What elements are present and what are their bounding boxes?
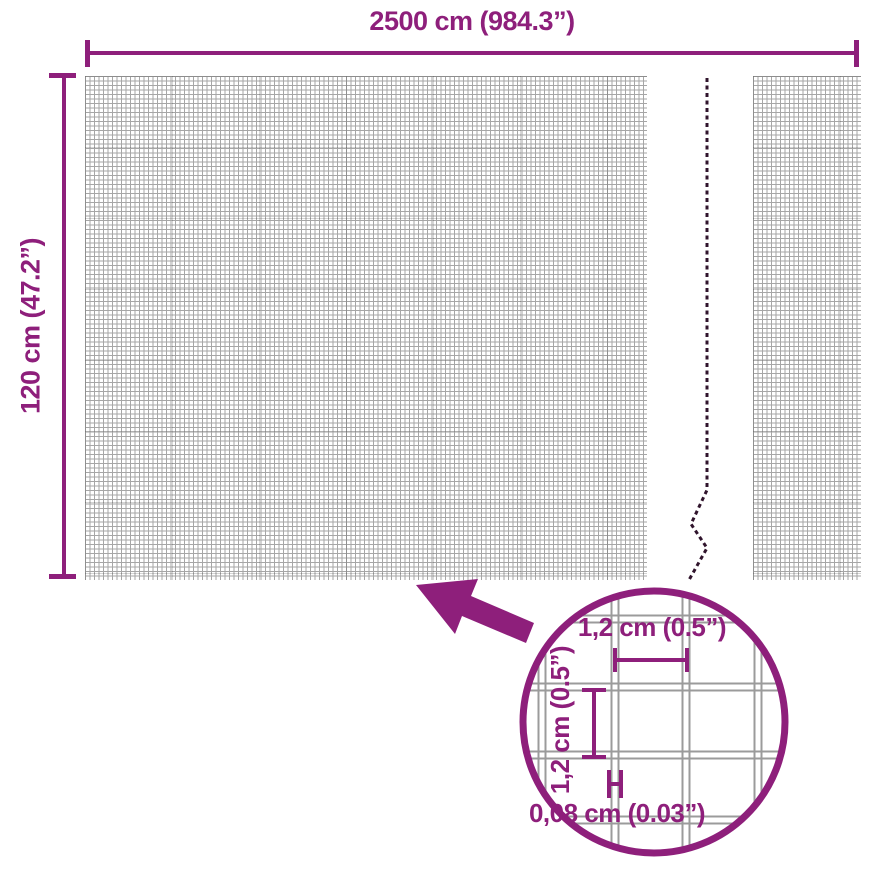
wire-thickness-ruler [609,770,621,798]
wire-thickness-label: 0,08 cm (0.03”) [529,798,705,828]
panel-break-line [689,78,707,580]
cell-width-ruler [615,648,687,672]
cell-height-ruler [582,690,606,757]
cell-width-label: 1,2 cm (0.5”) [578,612,726,642]
magnifier-arrow-icon [416,579,534,643]
product-dimension-diagram: 2500 cm (984.3”) 120 cm (47.2”) [0,0,875,875]
cell-height-label: 1,2 cm (0.5”) [545,646,575,794]
diagram-overlay: 1,2 cm (0.5”) 1,2 cm (0.5”) 0,08 cm (0.0… [0,0,875,875]
